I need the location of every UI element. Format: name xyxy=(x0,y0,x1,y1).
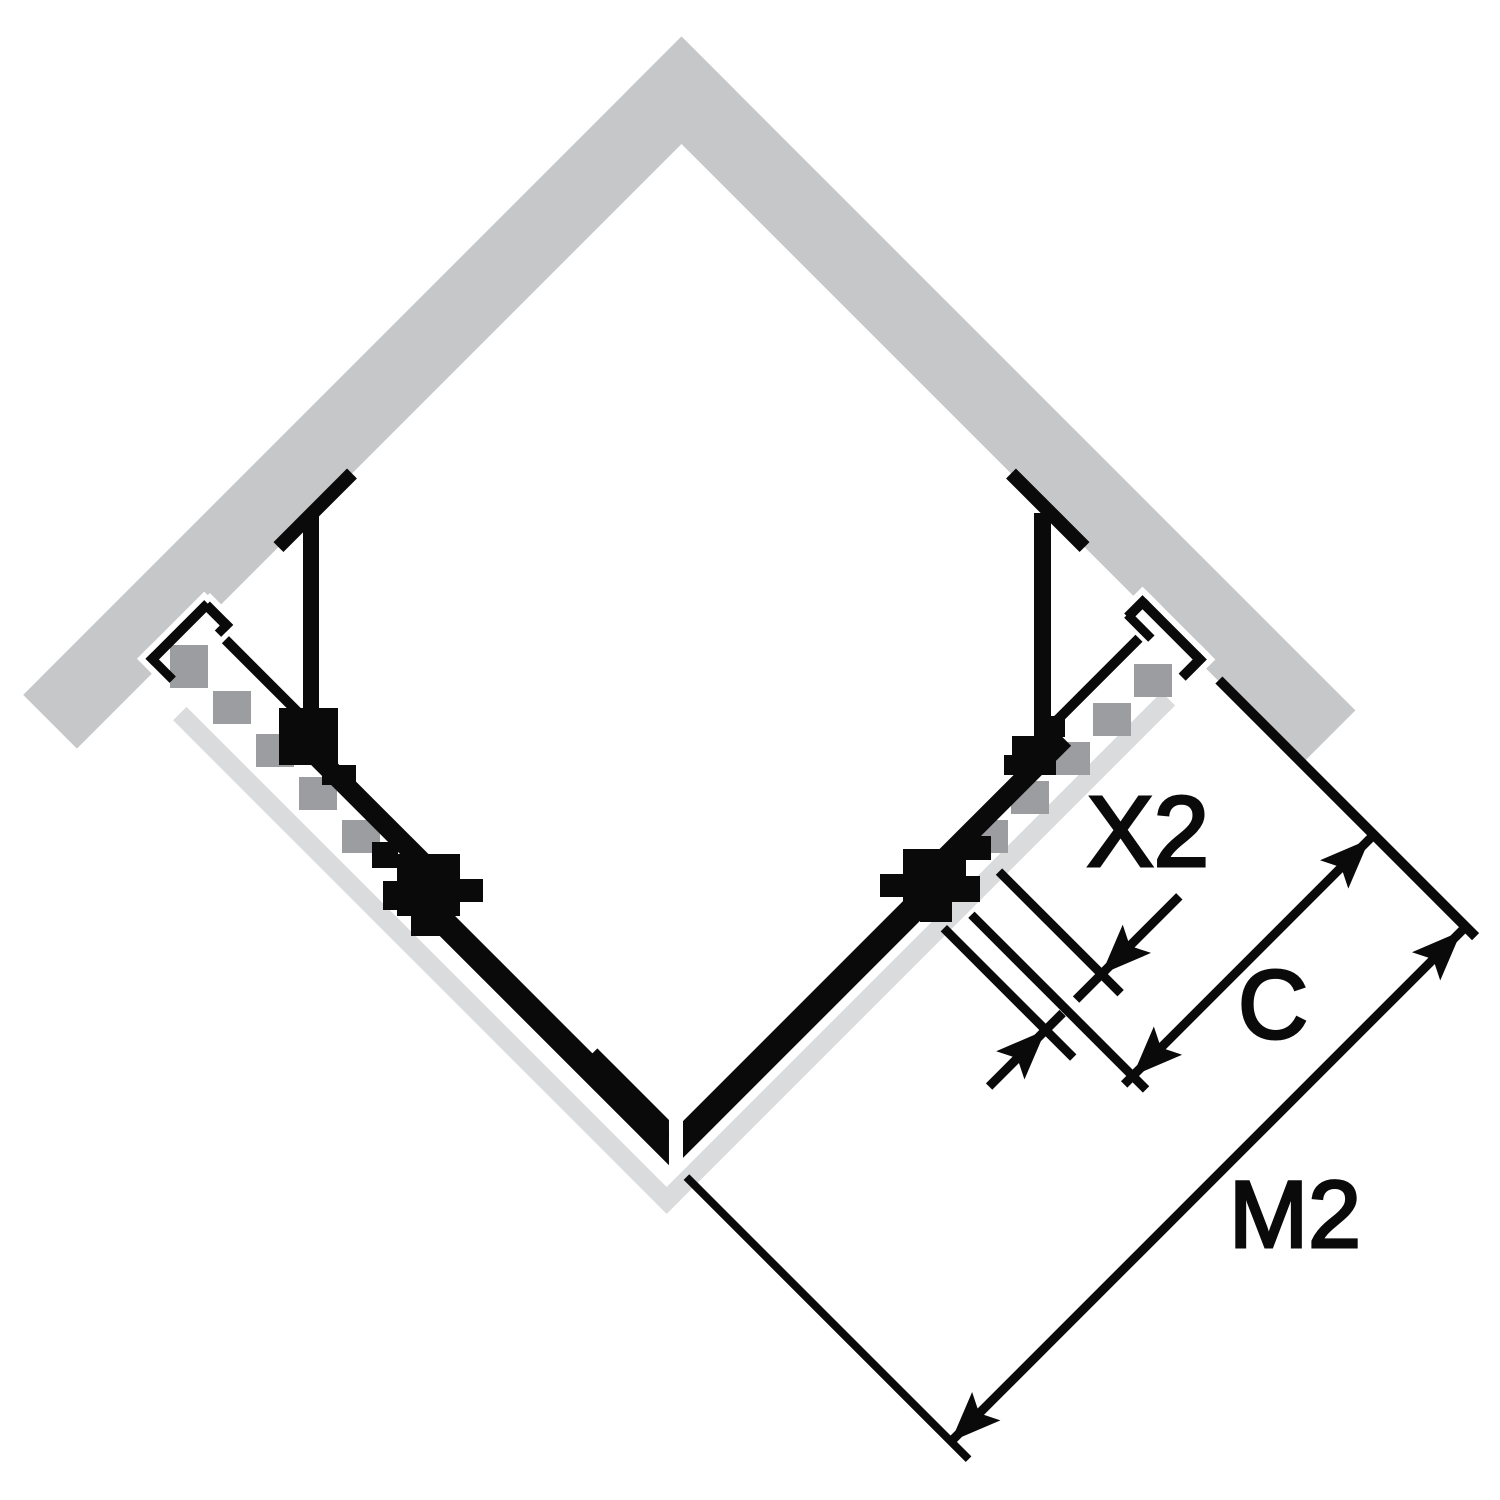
svg-text:C: C xyxy=(1238,950,1308,1059)
svg-text:M2: M2 xyxy=(1229,1162,1361,1268)
svg-text:X2: X2 xyxy=(1087,776,1209,888)
